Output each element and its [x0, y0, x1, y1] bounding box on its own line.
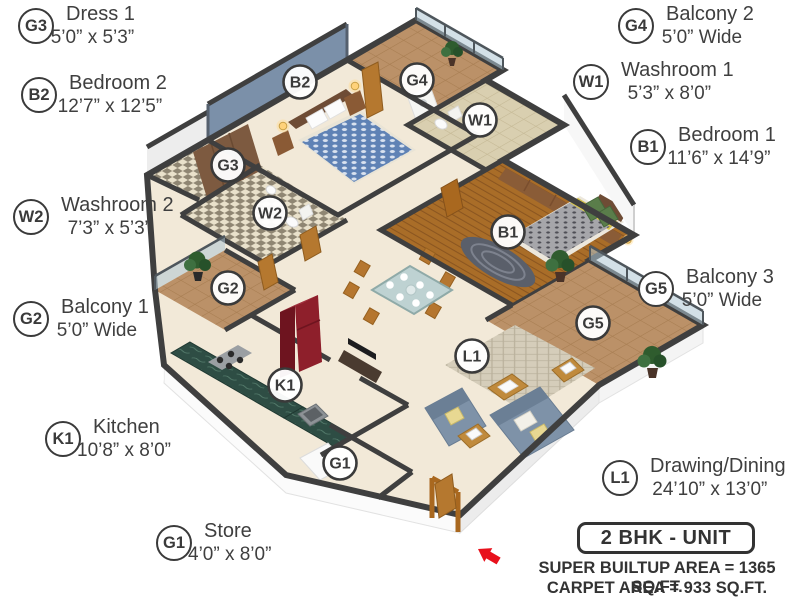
- legend-item-balcony1: G2 Balcony 1 5’0” Wide: [13, 296, 149, 342]
- svg-text:G5: G5: [582, 316, 603, 333]
- marker-g1: G1: [324, 447, 357, 480]
- room-code-badge: W1: [573, 64, 609, 100]
- legend-item-balcony3: G5 Balcony 3 5’0” Wide: [638, 266, 774, 312]
- room-dims: 5’0” Wide: [670, 290, 774, 312]
- room-name: Bedroom 1: [678, 124, 776, 147]
- svg-text:G1: G1: [329, 456, 350, 473]
- marker-k1: K1: [269, 369, 302, 402]
- svg-text:K1: K1: [275, 378, 296, 395]
- room-code-badge: G5: [638, 271, 674, 307]
- room-dims: 4’0” x 8’0”: [188, 544, 271, 566]
- room-code-badge: L1: [602, 460, 638, 496]
- legend-item-dress1: G3 Dress 1 5’0” x 5’3”: [18, 3, 135, 49]
- marker-l1: L1: [456, 340, 489, 373]
- legend-item-drawing-dining: L1 Drawing/Dining 24’10” x 13’0”: [602, 455, 786, 501]
- marker-g5: G5: [577, 307, 610, 340]
- unit-type-badge: 2 BHK - UNIT: [577, 522, 755, 554]
- svg-text:B1: B1: [498, 225, 519, 242]
- legend-item-store: G1 Store 4’0” x 8’0”: [156, 520, 271, 566]
- room-name: Bedroom 2: [69, 72, 167, 95]
- room-name: Balcony 1: [61, 296, 149, 319]
- carpet-area-text: CARPET AREA = 933 SQ.FT.: [512, 579, 800, 598]
- room-code-badge: G4: [618, 8, 654, 44]
- room-dims: 11’6” x 14’9”: [662, 148, 776, 170]
- svg-text:L1: L1: [463, 349, 482, 366]
- room-name: Washroom 1: [621, 59, 734, 82]
- room-dims: 12’7” x 12’5”: [53, 96, 167, 118]
- room-dims: 24’10” x 13’0”: [634, 479, 786, 501]
- legend-item-washroom1: W1 Washroom 1 5’3” x 8’0”: [573, 59, 734, 105]
- room-dims: 5’0” Wide: [650, 27, 754, 49]
- marker-g4: G4: [401, 64, 434, 97]
- room-name: Kitchen: [93, 416, 171, 439]
- svg-text:W2: W2: [258, 206, 282, 223]
- room-code-badge: G1: [156, 525, 192, 561]
- legend-item-bedroom1: B1 Bedroom 1 11’6” x 14’9”: [630, 124, 776, 170]
- room-dims: 7’3” x 5’3”: [45, 218, 174, 240]
- room-name: Balcony 2: [666, 3, 754, 26]
- room-dims: 5’0” x 5’3”: [50, 27, 135, 49]
- svg-text:W1: W1: [468, 113, 492, 130]
- legend-item-washroom2: W2 Washroom 2 7’3” x 5’3”: [13, 194, 174, 240]
- room-dims: 5’3” x 8’0”: [605, 83, 734, 105]
- marker-g3: G3: [212, 149, 245, 182]
- legend-item-kitchen: K1 Kitchen 10’8” x 8’0”: [45, 416, 171, 462]
- legend-item-bedroom2: B2 Bedroom 2 12’7” x 12’5”: [21, 72, 167, 118]
- room-name: Dress 1: [66, 3, 135, 26]
- room-code-badge: B1: [630, 129, 666, 165]
- marker-b2: B2: [284, 66, 317, 99]
- room-name: Drawing/Dining: [650, 455, 786, 478]
- room-dims: 5’0” Wide: [45, 320, 149, 342]
- room-code-badge: B2: [21, 77, 57, 113]
- room-dims: 10’8” x 8’0”: [77, 440, 171, 462]
- legend-item-balcony2: G4 Balcony 2 5’0” Wide: [618, 3, 754, 49]
- svg-text:G2: G2: [217, 281, 238, 298]
- room-code-badge: W2: [13, 199, 49, 235]
- marker-g2: G2: [212, 272, 245, 305]
- marker-b1: B1: [492, 216, 525, 249]
- floorplan-page: { "legend": { "left": [ {"code":"G3","na…: [0, 0, 800, 600]
- room-code-badge: G3: [18, 8, 54, 44]
- marker-w2: W2: [254, 197, 287, 230]
- svg-text:G3: G3: [217, 158, 238, 175]
- room-code-badge: K1: [45, 421, 81, 457]
- room-code-badge: G2: [13, 301, 49, 337]
- room-name: Balcony 3: [686, 266, 774, 289]
- room-name: Store: [204, 520, 271, 543]
- marker-w1: W1: [464, 104, 497, 137]
- room-name: Washroom 2: [61, 194, 174, 217]
- svg-text:B2: B2: [290, 75, 311, 92]
- entrance-arrow-icon: [478, 548, 501, 564]
- svg-text:G4: G4: [406, 73, 427, 90]
